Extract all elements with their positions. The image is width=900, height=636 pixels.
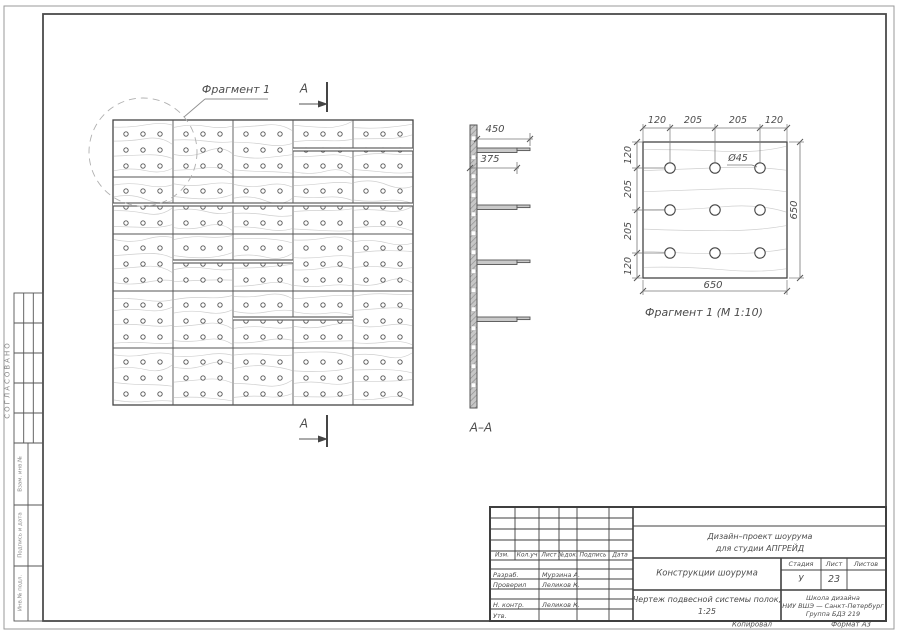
- tb-doc-title: Конструкции шоурума: [656, 569, 758, 580]
- tb-sheet-label: Лист: [826, 560, 842, 568]
- tb-col-data: Дата: [612, 551, 628, 559]
- section-mark-bottom-letter: А: [300, 417, 308, 432]
- footer-format: Формат А3: [831, 621, 871, 630]
- approved-stamp-label: СОГЛАСОВАНО: [4, 341, 13, 418]
- tb-project-line2: для студии АПГРЕЙД: [716, 544, 804, 554]
- section-view: [467, 125, 533, 408]
- tb-sheet-title-line1: Чертеж подвесной системы полок,: [633, 595, 781, 605]
- tb-sheet-value: 23: [828, 574, 840, 586]
- tb-col-izm: Изм.: [495, 551, 509, 559]
- tb-name-1: Леликов К.: [542, 581, 580, 589]
- tb-stage-value: У: [798, 575, 803, 586]
- dim-top-1: 120: [648, 115, 666, 127]
- tb-col-koluch: Кол.уч: [517, 551, 538, 559]
- tb-name-2: Леликов К.: [542, 601, 580, 609]
- footer-copied-by: Копировал: [732, 621, 772, 630]
- dim-left-3: 205: [623, 222, 635, 240]
- section-view-label: А–А: [470, 421, 492, 436]
- tb-name-0: Мурзина А.: [542, 571, 580, 579]
- fragment-caption: Фрагмент 1 (М 1:10): [645, 306, 763, 320]
- dim-left-1: 120: [623, 146, 635, 164]
- fragment-callout-label: Фрагмент 1: [202, 83, 270, 97]
- tb-project-line1: Дизайн–проект шоурума: [708, 532, 813, 542]
- tb-role-1: Проверил: [493, 581, 526, 589]
- dim-left-4: 120: [623, 257, 635, 275]
- dim-top-3: 205: [729, 115, 747, 127]
- dim-top-2: 205: [684, 115, 702, 127]
- tb-sheet-title-line2: 1:25: [698, 607, 716, 617]
- wall-front-view: [89, 98, 413, 405]
- tb-sheets-label: Листов: [854, 560, 878, 568]
- dim-top-4: 120: [765, 115, 783, 127]
- dim-shelf-length: 450: [485, 124, 504, 137]
- margin-label-inv-podl: Инв.№ подл.: [18, 575, 25, 611]
- dim-panel-width: 650: [703, 280, 722, 293]
- tb-col-list: Лист: [541, 551, 556, 559]
- dim-shelf-depth: 375: [480, 154, 499, 167]
- tb-role-0: Разраб.: [493, 571, 519, 579]
- margin-label-podpis-data: Подпись и дата: [18, 512, 25, 558]
- margin-label-vzam: Взам. инв.№: [18, 456, 25, 492]
- tb-role-2: Н. контр.: [493, 601, 524, 609]
- dim-panel-height: 650: [789, 200, 802, 219]
- tb-col-podpis: Подпись: [580, 551, 607, 559]
- fragment-detail-view: [632, 124, 804, 295]
- dim-hole-diameter: Ø45: [728, 153, 748, 165]
- tb-stage-label: Стадия: [789, 560, 814, 568]
- section-mark-top-letter: А: [300, 82, 308, 97]
- drawing-sheet: { "colors": { "ink": "#4c4c4c", "frame":…: [0, 0, 900, 636]
- tb-role-3: Утв.: [493, 612, 507, 620]
- tb-col-ndok: №док.: [558, 551, 578, 559]
- tb-org-line1: Школа дизайна: [806, 594, 860, 602]
- tb-org-line2: НИУ ВШЭ — Санкт-Петербург: [782, 602, 883, 610]
- dim-left-2: 205: [623, 180, 635, 198]
- tb-org-line3: Группа БДЗ 219: [806, 610, 860, 618]
